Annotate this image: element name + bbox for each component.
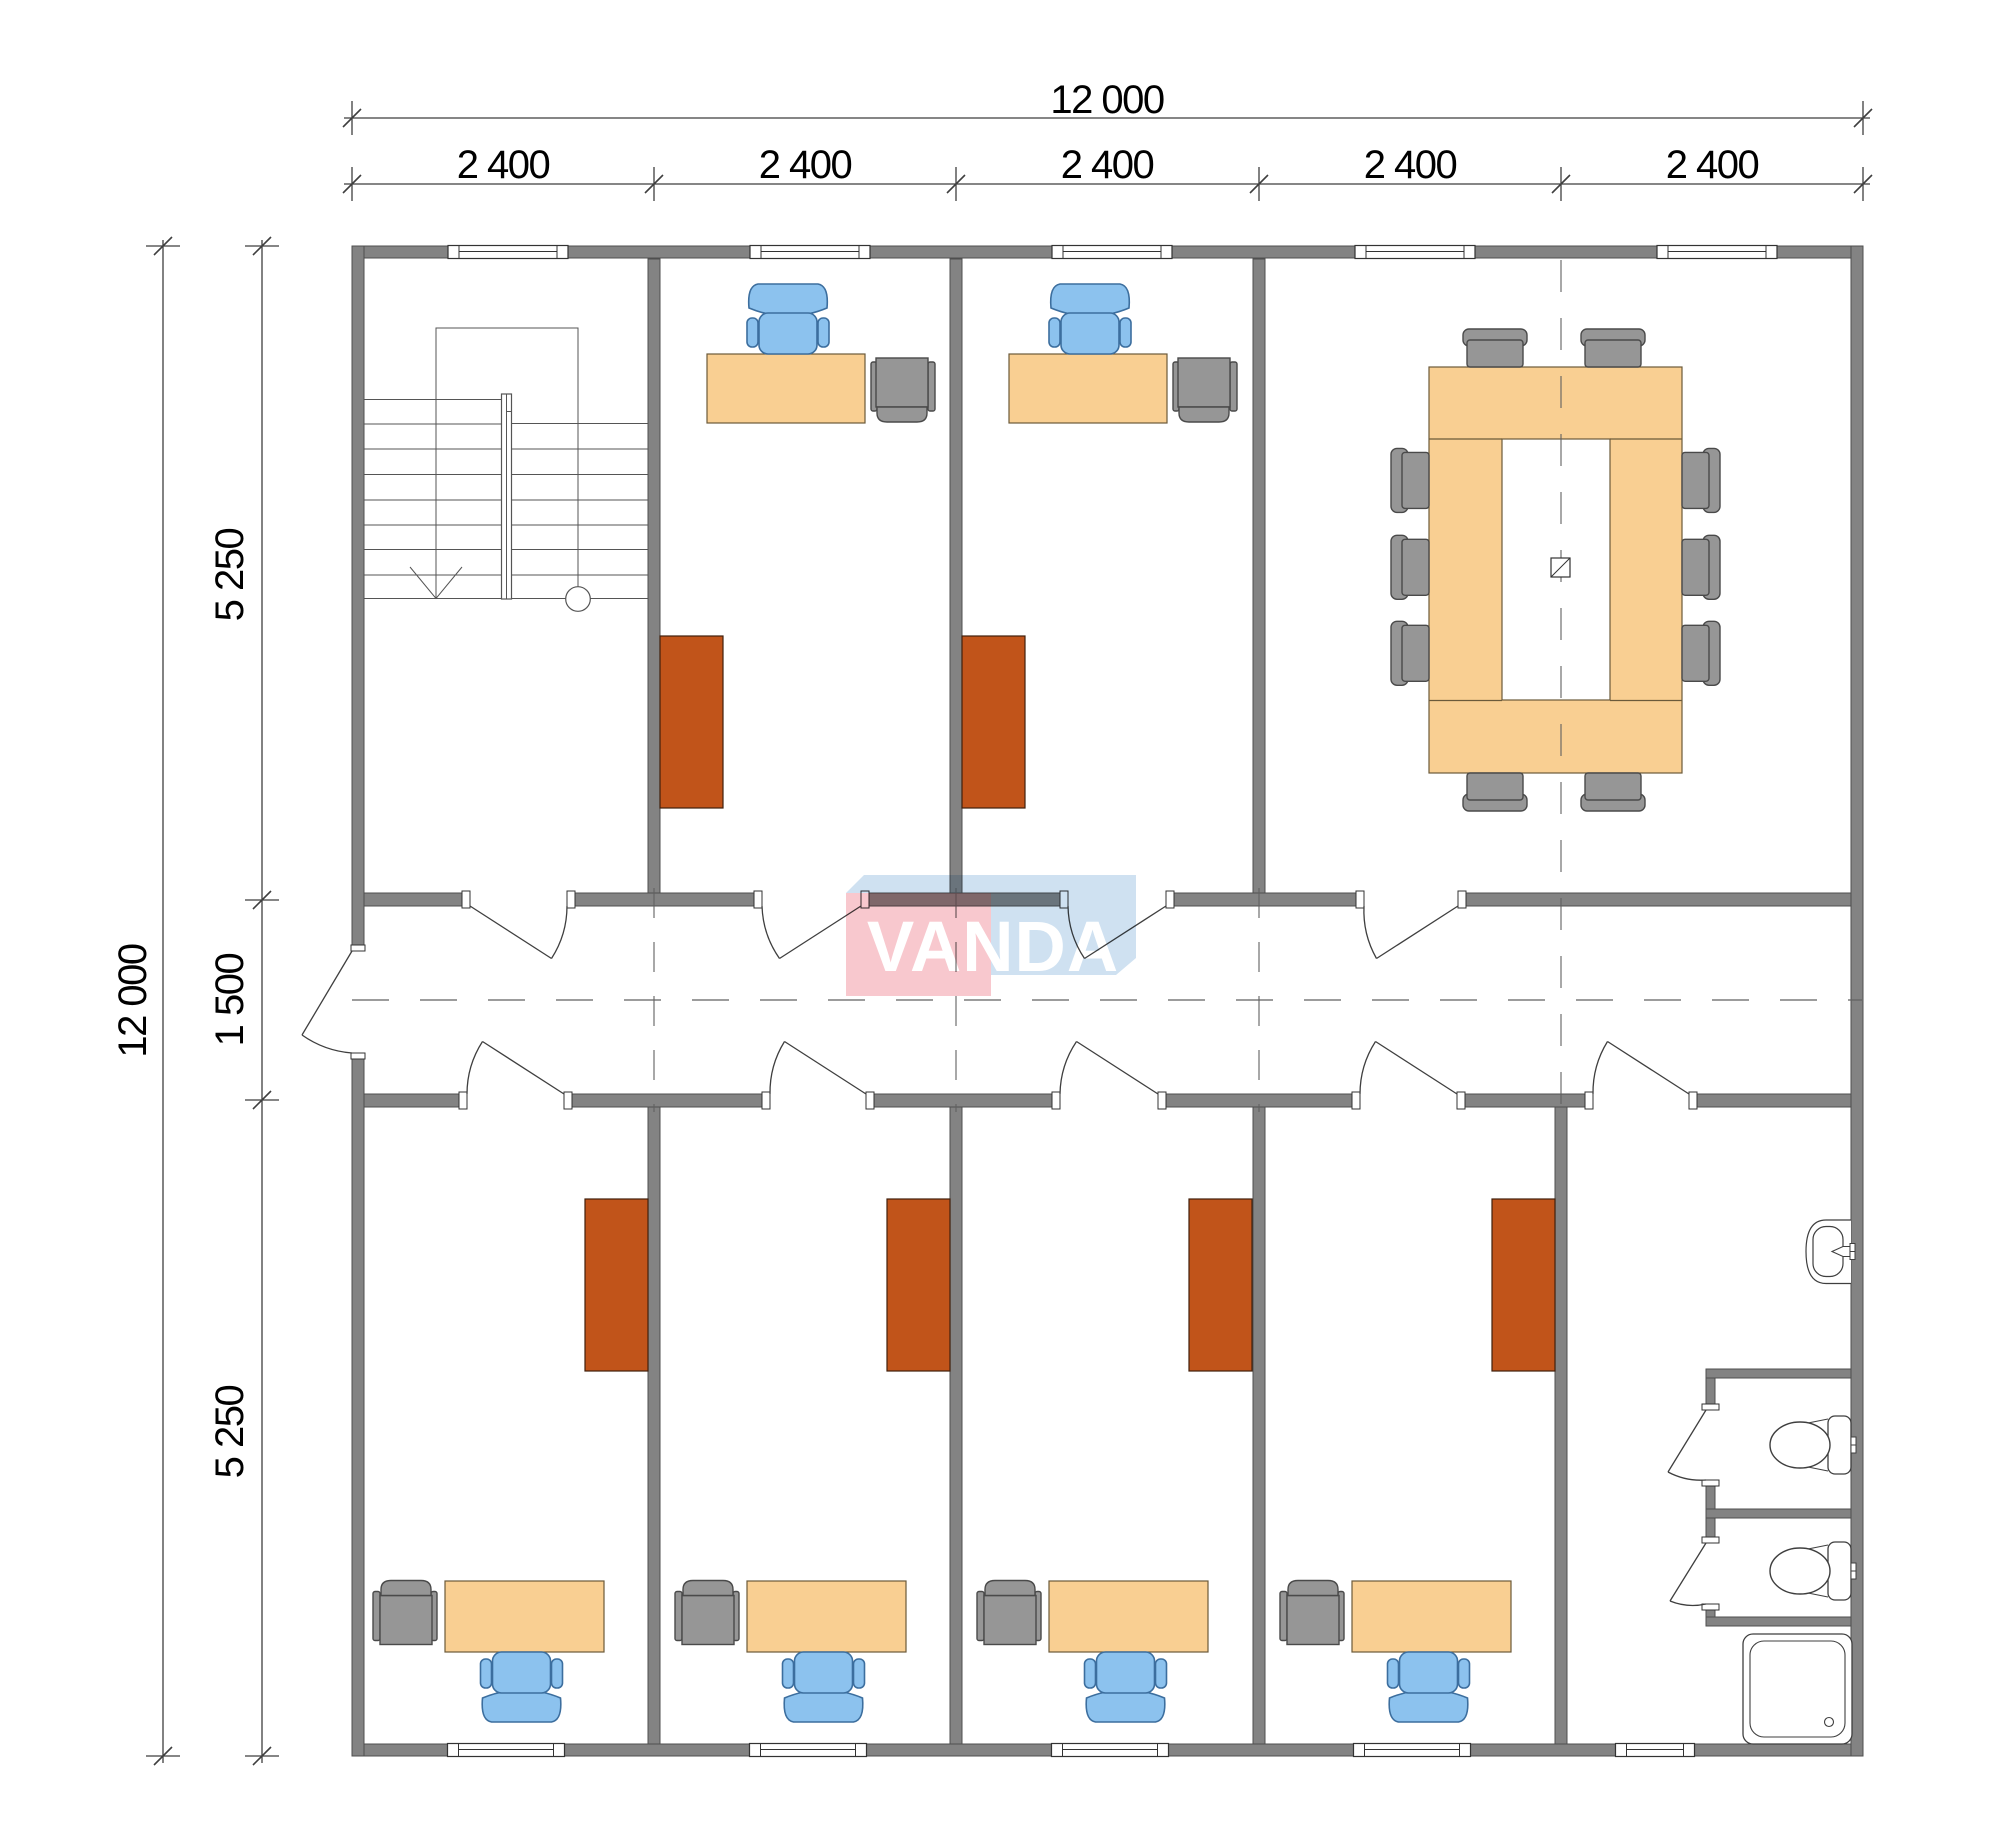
svg-text:5 250: 5 250 bbox=[208, 1385, 252, 1478]
svg-text:5 250: 5 250 bbox=[208, 528, 252, 621]
svg-text:VANDA: VANDA bbox=[867, 908, 1119, 987]
svg-text:2 400: 2 400 bbox=[1061, 143, 1154, 187]
svg-text:1 500: 1 500 bbox=[208, 953, 252, 1046]
svg-text:2 400: 2 400 bbox=[1364, 143, 1457, 187]
svg-text:2 400: 2 400 bbox=[1666, 143, 1759, 187]
svg-text:2 400: 2 400 bbox=[457, 143, 550, 187]
svg-text:2 400: 2 400 bbox=[759, 143, 852, 187]
svg-text:12 000: 12 000 bbox=[1050, 78, 1164, 122]
svg-text:12 000: 12 000 bbox=[111, 944, 155, 1058]
